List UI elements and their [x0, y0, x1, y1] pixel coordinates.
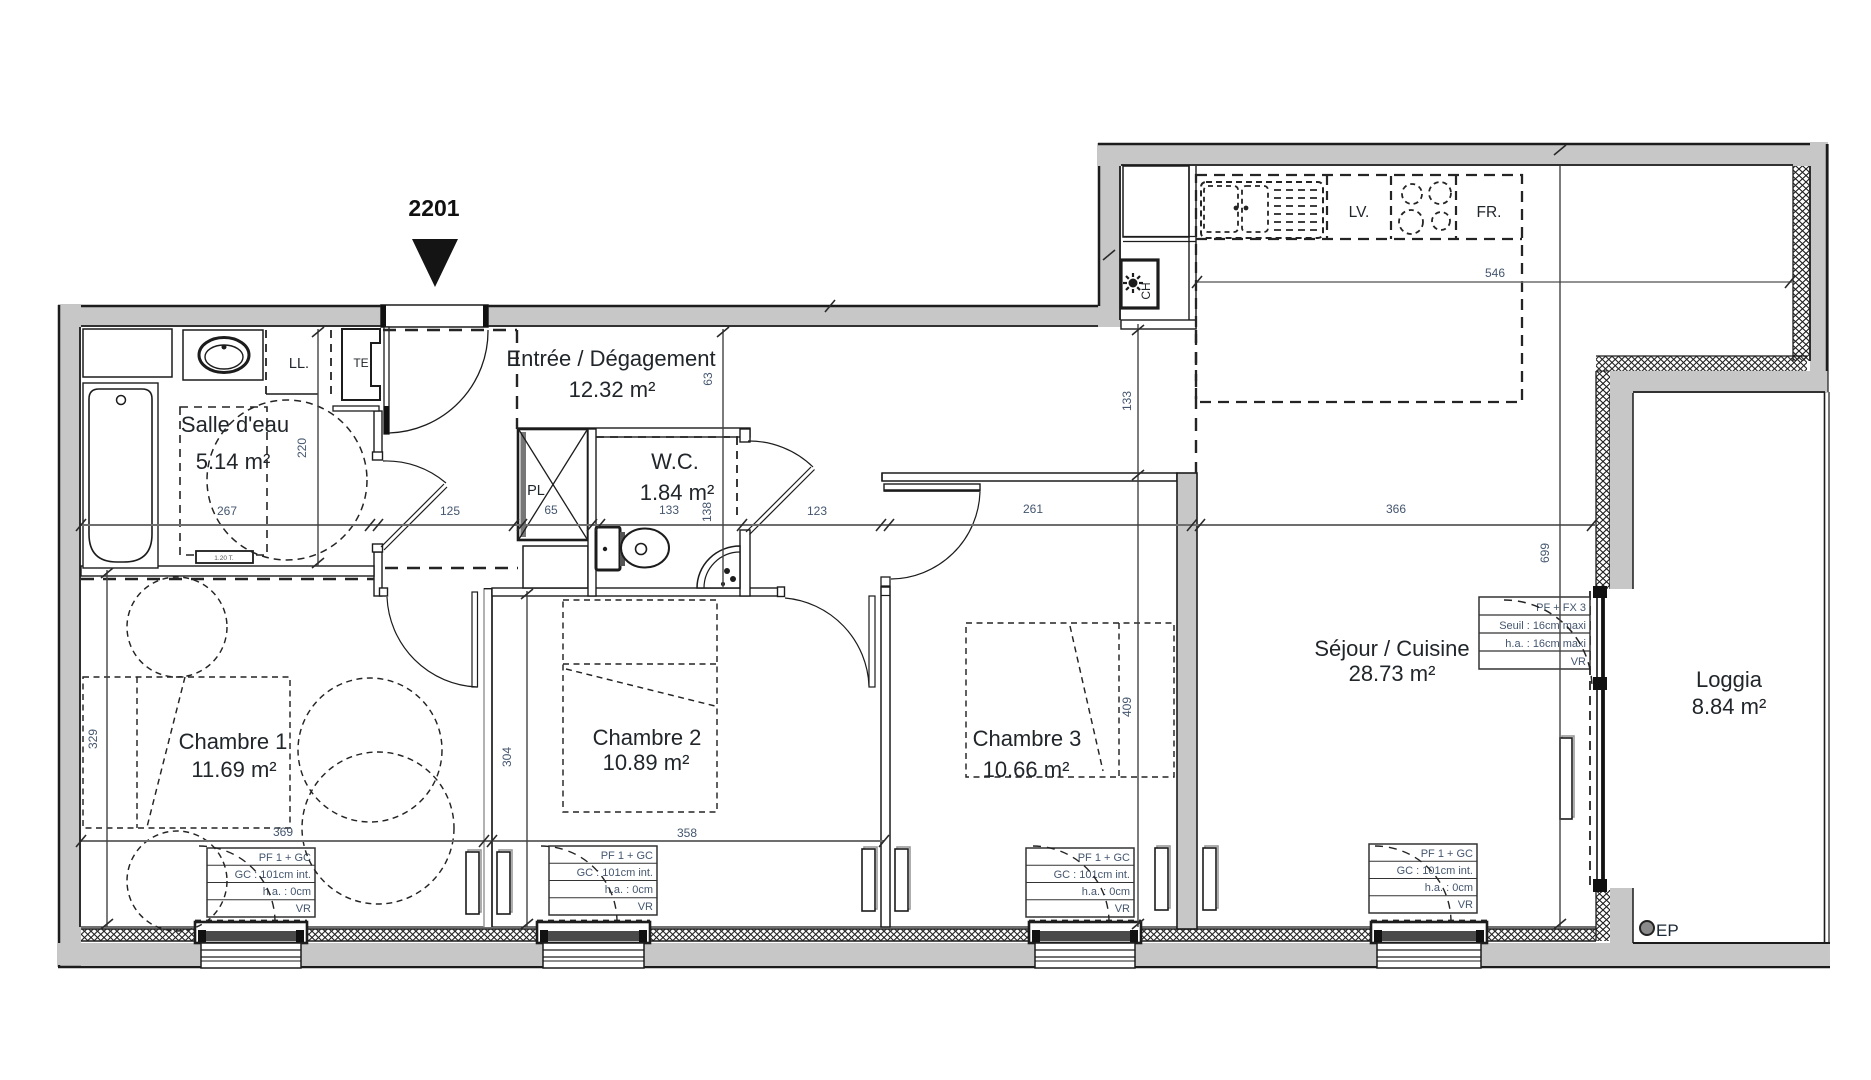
- svg-text:GC : 101cm int.: GC : 101cm int.: [1054, 869, 1130, 881]
- svg-text:10.66 m²: 10.66 m²: [983, 757, 1070, 782]
- svg-text:133: 133: [659, 503, 679, 517]
- svg-text:PF 1 + GC: PF 1 + GC: [601, 850, 653, 862]
- svg-text:65: 65: [544, 503, 558, 517]
- svg-text:5.14 m²: 5.14 m²: [196, 449, 271, 474]
- svg-text:VR: VR: [638, 901, 653, 913]
- svg-text:h.a. : 0cm: h.a. : 0cm: [263, 886, 311, 898]
- svg-text:699: 699: [1538, 543, 1552, 563]
- svg-text:8.84 m²: 8.84 m²: [1692, 694, 1767, 719]
- svg-text:409: 409: [1120, 697, 1134, 717]
- svg-text:VR: VR: [1115, 903, 1130, 915]
- svg-text:329: 329: [86, 729, 100, 749]
- svg-text:FR.: FR.: [1477, 204, 1502, 221]
- svg-text:Séjour / Cuisine: Séjour / Cuisine: [1314, 636, 1469, 661]
- svg-text:Salle d'eau: Salle d'eau: [181, 412, 289, 437]
- svg-text:h.a. : 16cm maxi: h.a. : 16cm maxi: [1505, 638, 1586, 650]
- svg-text:Entrée / Dégagement: Entrée / Dégagement: [506, 346, 715, 371]
- svg-text:Loggia: Loggia: [1696, 667, 1763, 692]
- svg-text:12.32 m²: 12.32 m²: [569, 377, 656, 402]
- svg-text:261: 261: [1023, 502, 1043, 516]
- svg-text:Chambre 2: Chambre 2: [593, 725, 702, 750]
- svg-text:366: 366: [1386, 502, 1406, 516]
- svg-text:133: 133: [1120, 391, 1134, 411]
- svg-text:GC : 101cm int.: GC : 101cm int.: [1397, 865, 1473, 877]
- svg-text:GC : 101cm int.: GC : 101cm int.: [577, 867, 653, 879]
- svg-text:267: 267: [217, 504, 237, 518]
- svg-text:Chambre 1: Chambre 1: [179, 729, 288, 754]
- svg-text:VR: VR: [1571, 656, 1586, 668]
- svg-text:546: 546: [1485, 266, 1505, 280]
- svg-text:Seuil : 16cm maxi: Seuil : 16cm maxi: [1499, 620, 1586, 632]
- svg-text:h.a. : 0cm: h.a. : 0cm: [1425, 882, 1473, 894]
- svg-text:63: 63: [701, 372, 715, 386]
- svg-text:304: 304: [500, 747, 514, 767]
- svg-text:LV.: LV.: [1349, 204, 1370, 221]
- svg-text:123: 123: [807, 504, 827, 518]
- svg-text:VR: VR: [1458, 899, 1473, 911]
- svg-text:VR: VR: [296, 903, 311, 915]
- svg-text:GC : 101cm int.: GC : 101cm int.: [235, 869, 311, 881]
- svg-text:PL: PL: [527, 483, 545, 499]
- svg-text:CH: CH: [1139, 282, 1153, 299]
- svg-text:369: 369: [273, 825, 293, 839]
- svg-text:PF 1 + GC: PF 1 + GC: [1421, 848, 1473, 860]
- svg-text:28.73 m²: 28.73 m²: [1349, 661, 1436, 686]
- svg-text:EP: EP: [1656, 921, 1679, 940]
- svg-text:W.C.: W.C.: [651, 449, 699, 474]
- svg-text:LL.: LL.: [289, 356, 309, 372]
- svg-text:2201: 2201: [408, 195, 459, 221]
- svg-text:TE: TE: [353, 356, 368, 370]
- svg-text:1.20 T.: 1.20 T.: [214, 555, 234, 562]
- svg-text:h.a. : 0cm: h.a. : 0cm: [1082, 886, 1130, 898]
- svg-text:PF 1 + GC: PF 1 + GC: [1078, 852, 1130, 864]
- svg-text:358: 358: [677, 826, 697, 840]
- svg-text:PF + FX 3: PF + FX 3: [1536, 602, 1586, 614]
- svg-text:11.69 m²: 11.69 m²: [191, 757, 276, 782]
- svg-text:125: 125: [440, 504, 460, 518]
- svg-text:220: 220: [295, 438, 309, 458]
- svg-text:PF 1 + GC: PF 1 + GC: [259, 852, 311, 864]
- svg-text:10.89 m²: 10.89 m²: [603, 750, 690, 775]
- svg-text:Chambre 3: Chambre 3: [973, 726, 1082, 751]
- svg-text:1.84 m²: 1.84 m²: [640, 480, 715, 505]
